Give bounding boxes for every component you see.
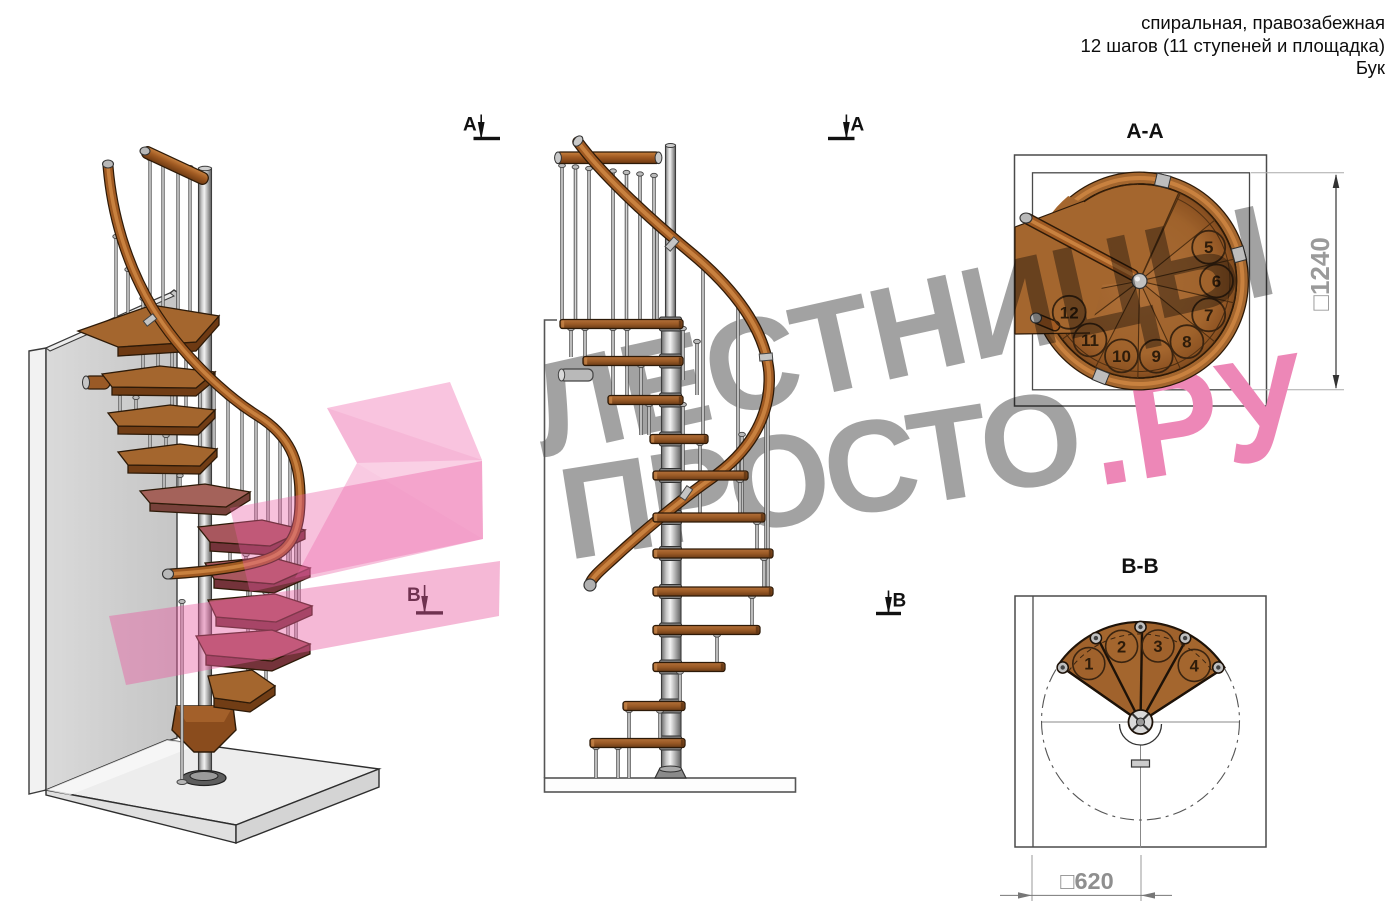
svg-text:2: 2 bbox=[1117, 638, 1126, 656]
svg-text:□620: □620 bbox=[1060, 868, 1113, 894]
svg-text:В-В: В-В bbox=[1121, 555, 1158, 578]
svg-text:9: 9 bbox=[1151, 347, 1160, 366]
svg-text:□1240: □1240 bbox=[1305, 237, 1335, 311]
svg-text:4: 4 bbox=[1190, 657, 1200, 675]
svg-text:А: А bbox=[851, 115, 865, 136]
svg-text:1: 1 bbox=[1084, 656, 1093, 674]
svg-text:спиральная, правозабежная: спиральная, правозабежная bbox=[1141, 12, 1385, 33]
svg-text:3: 3 bbox=[1153, 638, 1162, 656]
svg-text:А-А: А-А bbox=[1126, 120, 1163, 143]
svg-text:Бук: Бук bbox=[1356, 57, 1386, 78]
svg-text:В: В bbox=[893, 591, 907, 612]
svg-text:12 шагов (11 ступеней и площад: 12 шагов (11 ступеней и площадка) bbox=[1081, 35, 1385, 56]
svg-text:А: А bbox=[463, 115, 477, 136]
